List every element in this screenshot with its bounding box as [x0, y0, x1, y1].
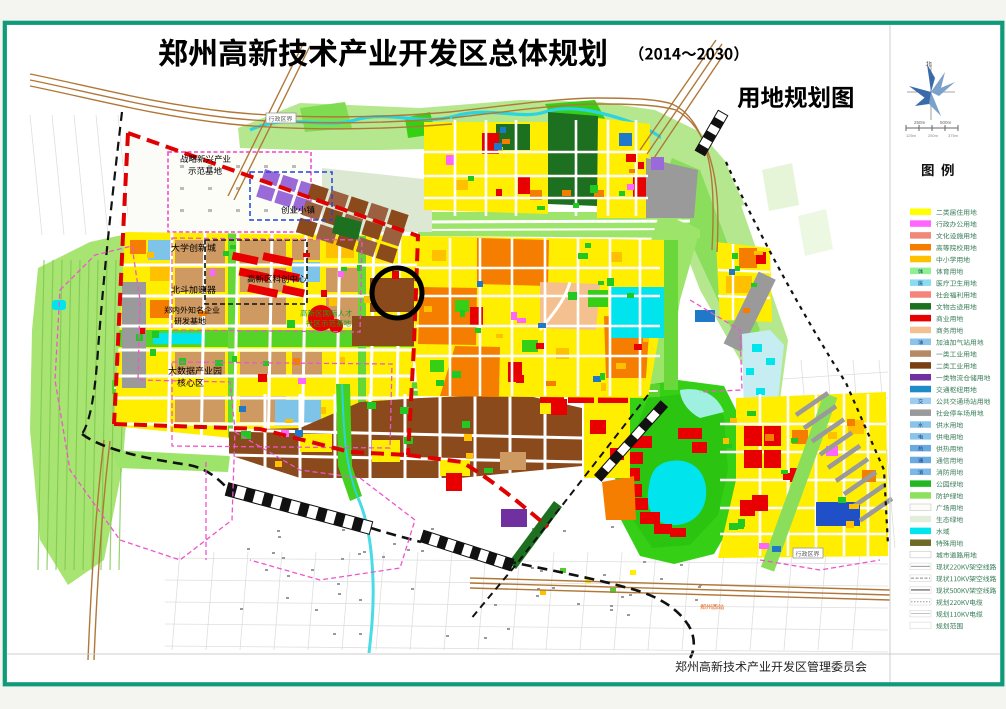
svg-text:500m: 500m — [940, 120, 952, 125]
svg-text:125m: 125m — [906, 133, 917, 138]
svg-text:250m: 250m — [914, 120, 926, 125]
svg-text:250m: 250m — [928, 133, 939, 138]
svg-text:375m: 375m — [948, 133, 959, 138]
